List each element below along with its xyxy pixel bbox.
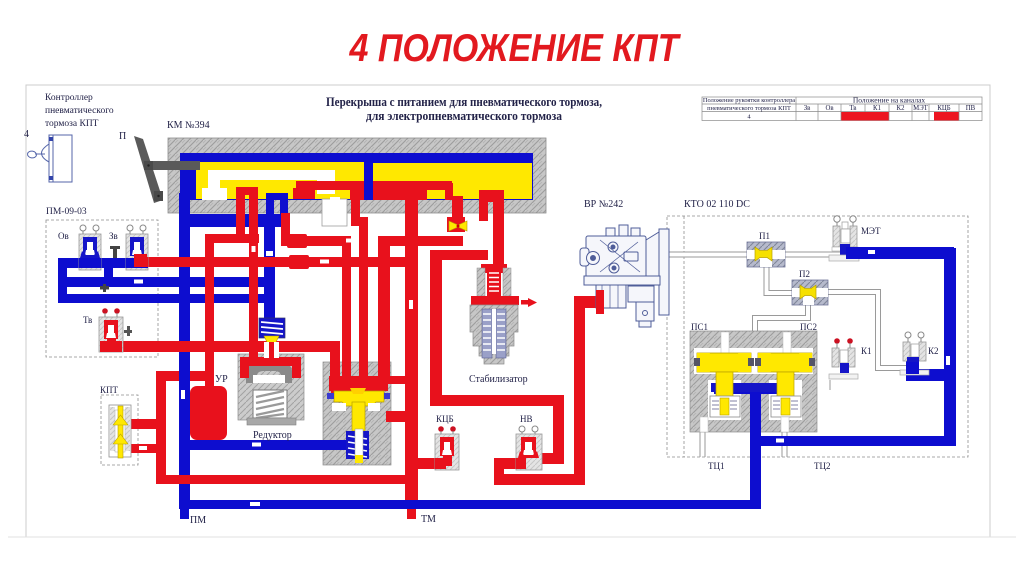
svg-text:Тв: Тв xyxy=(83,315,92,325)
svg-text:Ов: Ов xyxy=(58,231,69,241)
svg-text:Перекрыша с питанием для пневм: Перекрыша с питанием для пневматического… xyxy=(326,95,602,109)
svg-text:НВ: НВ xyxy=(520,414,533,424)
svg-text:КЦБ: КЦБ xyxy=(937,105,950,112)
svg-text:Редуктор: Редуктор xyxy=(253,430,292,441)
svg-text:КПТ: КПТ xyxy=(100,385,119,395)
svg-text:УР: УР xyxy=(215,374,228,385)
svg-text:МЭТ: МЭТ xyxy=(913,105,929,112)
svg-text:ПС2: ПС2 xyxy=(800,322,817,332)
svg-text:ВР №242: ВР №242 xyxy=(584,199,623,210)
svg-text:ПМ: ПМ xyxy=(190,515,206,526)
svg-text:П1: П1 xyxy=(759,231,770,241)
svg-text:ТЦ1: ТЦ1 xyxy=(708,461,725,471)
svg-text:ПВ: ПВ xyxy=(966,105,976,112)
svg-text:Положение на каналах: Положение на каналах xyxy=(853,96,926,105)
svg-text:Стабилизатор: Стабилизатор xyxy=(469,374,528,385)
svg-text:ТМ: ТМ xyxy=(421,514,436,525)
svg-text:ПМ-09-03: ПМ-09-03 xyxy=(46,207,87,217)
svg-text:Положение рукоятки контроллера: Положение рукоятки контроллера xyxy=(703,97,795,104)
svg-text:тормоза КПТ: тормоза КПТ xyxy=(45,119,99,129)
svg-text:ТЦ2: ТЦ2 xyxy=(814,461,831,471)
svg-text:4 ПОЛОЖЕНИЕ КПТ: 4 ПОЛОЖЕНИЕ КПТ xyxy=(349,27,682,70)
svg-text:Зв: Зв xyxy=(804,105,811,112)
svg-text:Зв: Зв xyxy=(109,231,118,241)
svg-text:пневматического: пневматического xyxy=(45,106,114,116)
svg-text:КТО 02 110 DC: КТО 02 110 DC xyxy=(684,199,750,210)
svg-text:ПС1: ПС1 xyxy=(691,322,708,332)
svg-text:П: П xyxy=(119,131,126,142)
svg-text:пневматического тормоза КПТ: пневматического тормоза КПТ xyxy=(707,105,791,112)
svg-text:КЦБ: КЦБ xyxy=(436,414,454,424)
svg-text:4: 4 xyxy=(24,129,29,140)
svg-text:К2: К2 xyxy=(897,105,906,112)
svg-text:КМ №394: КМ №394 xyxy=(167,120,210,131)
svg-text:Тв: Тв xyxy=(849,105,856,112)
svg-text:МЭТ: МЭТ xyxy=(861,226,881,236)
svg-text:Ов: Ов xyxy=(825,105,833,112)
svg-text:К1: К1 xyxy=(873,105,881,112)
svg-text:для электропневматического тор: для электропневматического тормоза xyxy=(366,109,563,123)
svg-text:К2: К2 xyxy=(928,346,939,356)
svg-text:П2: П2 xyxy=(799,269,810,279)
svg-text:Контроллер: Контроллер xyxy=(45,93,93,103)
svg-text:К1: К1 xyxy=(861,346,872,356)
